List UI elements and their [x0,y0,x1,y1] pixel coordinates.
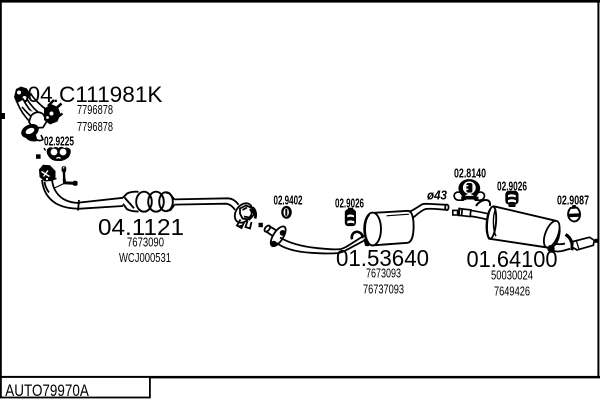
svg-text:02.9026: 02.9026 [497,179,527,193]
svg-text:02.9026: 02.9026 [335,196,364,210]
svg-text:02.9402: 02.9402 [274,194,303,208]
svg-text:WCJ000531: WCJ000531 [119,251,171,265]
svg-text:ø43: ø43 [427,189,447,203]
svg-text:7673090: 7673090 [127,235,164,249]
svg-text:AUTO79970A: AUTO79970A [5,381,89,400]
svg-text:02.8140: 02.8140 [454,166,486,180]
svg-text:02.9225: 02.9225 [44,135,74,149]
svg-text:02.9087: 02.9087 [557,193,589,207]
svg-text:7673093: 7673093 [366,267,401,281]
svg-text:7796878: 7796878 [77,103,113,117]
svg-text:7649426: 7649426 [494,284,530,298]
svg-text:76737093: 76737093 [363,282,404,296]
svg-text:50030024: 50030024 [491,269,533,283]
svg-text:7796878: 7796878 [77,120,113,134]
